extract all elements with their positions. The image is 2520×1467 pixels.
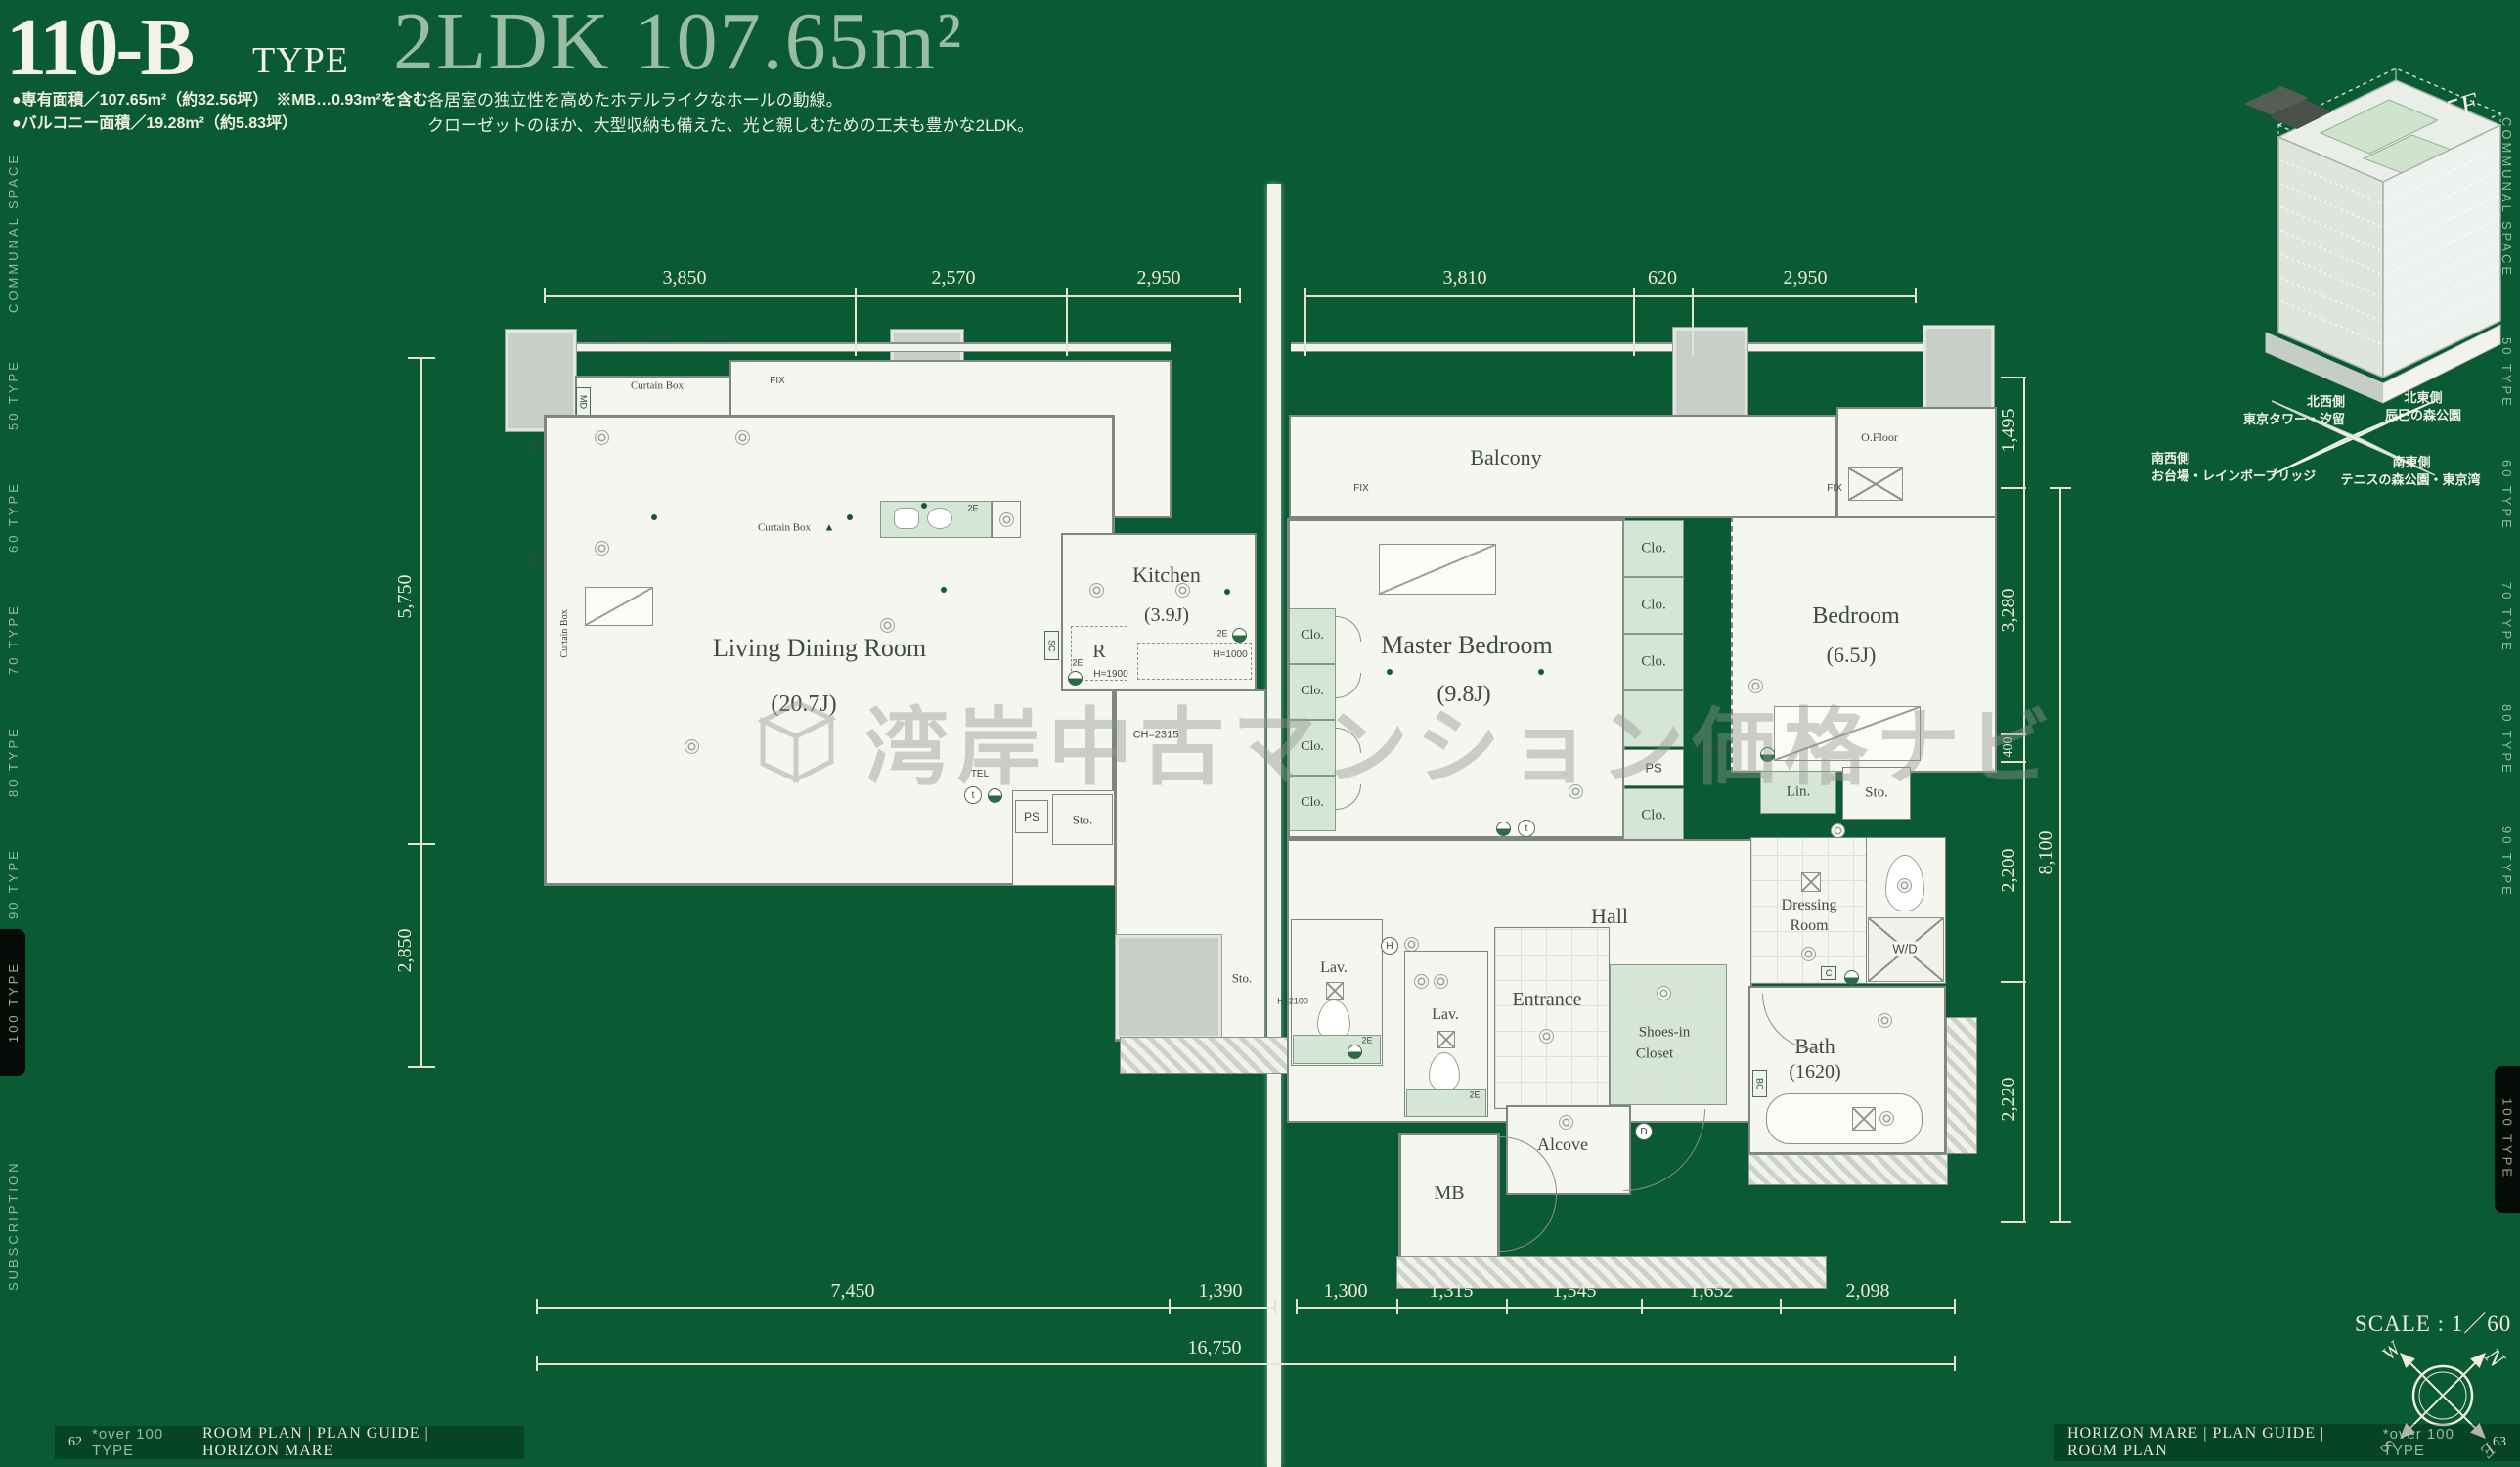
dim-tick	[2001, 487, 2026, 489]
dim-label: 3,850	[663, 268, 707, 288]
compass-ne-place: 辰巳の森公園	[2345, 405, 2501, 423]
ceiling-fixture	[1748, 679, 1763, 693]
compass-se-place: テニスの森公園・東京湾	[2298, 469, 2520, 488]
fix-window-label: FIX	[710, 333, 726, 342]
lavatory-label: Lav.	[1432, 1007, 1459, 1023]
dim-line	[2023, 377, 2025, 1221]
dim-tick	[408, 357, 435, 359]
kitchen-size: (3.9J)	[1144, 605, 1189, 625]
entrance-door-arc	[1623, 1109, 1705, 1191]
dim-tick	[1954, 1356, 1956, 1371]
compass-sw-side: 南西側	[2151, 448, 2269, 467]
closet-label: Clo.	[1641, 542, 1665, 556]
sink-basin	[894, 508, 919, 529]
bath-size: (1620)	[1789, 1062, 1840, 1082]
dim-tick	[2001, 1221, 2026, 1222]
outlet-symbol	[1844, 970, 1859, 985]
dressing-room-label-2: Room	[1790, 918, 1828, 934]
outlet-symbol	[1348, 1045, 1362, 1059]
curtain-box-label: Curtain Box	[758, 523, 811, 534]
closet-label: Clo.	[1641, 809, 1665, 823]
edge-tab-communal-left: COMMUNAL SPACE	[6, 108, 21, 313]
area-line-2: ●バルコニー面積／19.28m²（約5.83坪）	[12, 110, 297, 133]
dim-tick	[1692, 288, 1694, 356]
ceiling-dot	[1741, 800, 1746, 806]
dim-label: 2,950	[1784, 268, 1828, 288]
ceiling-fixture	[1175, 583, 1190, 598]
ceiling-dot	[1224, 589, 1230, 595]
dim-label: 1,545	[1553, 1281, 1597, 1301]
dim-tick	[1506, 1299, 1508, 1314]
meter-box-label: MB	[1434, 1183, 1464, 1203]
o-floor-terrace	[1836, 407, 1997, 518]
building-axon: 25F	[2244, 39, 2508, 416]
page-number-left: 62	[68, 1435, 82, 1450]
footer-right-type: *over 100 TYPE	[2383, 1426, 2483, 1459]
dim-label: 2,850	[395, 929, 415, 973]
ceiling-dot	[651, 514, 657, 520]
outlet-symbol	[1496, 822, 1511, 836]
closet-label: Clo.	[1641, 655, 1665, 670]
ceiling-dot	[1538, 669, 1544, 675]
triangle-marker: ▲	[824, 523, 835, 534]
edge-tab-80-right: 80 TYPE	[2499, 704, 2514, 802]
dim-tick	[2001, 377, 2026, 378]
footer-left-type: *over 100 TYPE	[92, 1426, 193, 1459]
dim-tick	[1633, 288, 1635, 356]
dim-tick	[1915, 288, 1917, 303]
dim-label: 1,315	[1430, 1281, 1474, 1301]
edge-tab-subscription-left: SUBSCRIPTION	[6, 1105, 21, 1291]
bedroom-size: (6.5J)	[1827, 645, 1877, 666]
fix-window-label: FIX	[770, 377, 785, 386]
fix-window-label: FIX	[1353, 484, 1369, 494]
compass-nw-place: 東京タワー・汐留	[2159, 409, 2345, 427]
closet-label: Clo.	[1301, 796, 1324, 810]
edge-tab-90-right: 90 TYPE	[2499, 826, 2514, 924]
h-marker: H	[1381, 937, 1398, 955]
edge-tab-60-left: 60 TYPE	[6, 455, 21, 553]
dim-line-total	[2059, 487, 2061, 1221]
ceiling-fixture	[1801, 947, 1816, 961]
edge-tab-90-left: 90 TYPE	[6, 822, 21, 919]
o-floor-label: O.Floor	[1861, 431, 1898, 443]
dim-tick	[1641, 1299, 1643, 1314]
plan-type-code: 110-B	[6, 0, 192, 95]
tel-outlet-symbol: t	[964, 786, 982, 804]
ceiling-fixture	[1559, 1115, 1573, 1130]
entrance	[1494, 927, 1610, 1109]
living-dining-label: Living Dining Room	[713, 636, 926, 661]
balcony-right	[1289, 415, 1836, 518]
dim-label: 1,652	[1690, 1281, 1734, 1301]
c-tag: C	[1821, 966, 1836, 980]
ceiling-fixture	[1569, 784, 1583, 799]
pillar	[1672, 327, 1748, 426]
dim-tick	[1274, 1299, 1276, 1314]
outlet-symbol	[988, 788, 1002, 803]
plan-type-suffix: TYPE	[252, 39, 349, 82]
footer-right: HORIZON MARE | PLAN GUIDE | ROOM PLAN *o…	[2054, 1424, 2520, 1461]
dim-label: 5,750	[395, 575, 415, 619]
alcove-label: Alcove	[1537, 1135, 1588, 1153]
ceiling-fixture	[1089, 583, 1104, 598]
dim-label: 2,220	[1999, 1078, 2018, 1122]
linen-label: Lin.	[1787, 785, 1811, 800]
closet-label: Clo.	[1301, 629, 1324, 643]
kitchen-counter-dashed	[1137, 643, 1252, 680]
description-line-2: クローゼットのほか、大型収納も備えた、光と親しむための工夫も豊かな2LDK。	[427, 111, 1034, 136]
dim-tick	[408, 1066, 435, 1068]
ceiling-fixture	[595, 430, 609, 445]
switch-symbol: t	[1518, 820, 1535, 837]
dim-tick	[1296, 1299, 1298, 1314]
dim-line	[1296, 1307, 1954, 1309]
balcony-rail	[577, 342, 1171, 352]
ceiling-fixture	[685, 739, 699, 754]
dim-label-total: 8,100	[2036, 831, 2056, 875]
fix-window-label: FIX	[1827, 484, 1842, 494]
edge-tab-60-right: 60 TYPE	[2499, 460, 2514, 557]
closet-label: Clo.	[1641, 599, 1665, 613]
edge-tab-100-active-right: 100 TYPE	[2495, 1066, 2520, 1213]
edge-tab-50-right: 50 TYPE	[2499, 337, 2514, 435]
dim-label-total: 16,750	[1188, 1338, 1242, 1357]
plan-spec: 2LDK 107.65m²	[393, 0, 963, 89]
refrigerator-label: R	[1092, 642, 1105, 661]
compass-ne-side: 北東側	[2355, 387, 2492, 406]
fixture-circle	[1434, 974, 1448, 989]
faucet-dot	[921, 503, 927, 509]
tel-label: TEL	[971, 770, 989, 779]
shower-symbol	[1878, 1013, 1892, 1028]
storage-label: Sto.	[1232, 972, 1253, 985]
sink-basin	[927, 508, 952, 529]
bedroom-label: Bedroom	[1812, 604, 1899, 628]
fixture-box	[1437, 1031, 1455, 1048]
dressing-room-label-1: Dressing	[1782, 898, 1837, 913]
dim-label: 400	[2002, 737, 2015, 758]
dim-tick	[408, 843, 435, 845]
ps-label: PS	[1645, 762, 1661, 775]
edge-tab-100-active-left: 100 TYPE	[0, 929, 25, 1076]
dim-tick	[544, 288, 546, 303]
dim-tick	[2001, 733, 2026, 735]
ceiling-height-label: CH=2315	[1133, 731, 1179, 741]
bed-symbol	[1379, 544, 1496, 595]
fixture-circle	[1404, 937, 1419, 952]
outlet-2e-label: 2E	[1072, 659, 1083, 668]
dim-tick	[1169, 1299, 1171, 1314]
fixture-circle	[1414, 974, 1429, 989]
ceiling-dot	[941, 587, 947, 593]
balcony-rail	[1291, 342, 1966, 352]
ceiling-fixture	[880, 618, 895, 633]
dim-line	[544, 295, 1239, 297]
bathtub	[1766, 1093, 1923, 1144]
storage-label: Sto.	[1073, 814, 1093, 826]
basin-drain	[1897, 878, 1912, 893]
dim-tick	[1780, 1299, 1782, 1314]
curtain-box-vertical-label: Curtain Box	[560, 609, 570, 657]
md-tag: MD	[576, 387, 591, 417]
edge-tab-50-left: 50 TYPE	[6, 333, 21, 430]
ceiling-fixture	[735, 430, 750, 445]
fixture-box	[1801, 872, 1821, 892]
ceiling-dot	[847, 514, 853, 520]
height-label: H=2100	[1277, 998, 1308, 1006]
ceiling-fixture	[1831, 823, 1845, 838]
brochure-page: 110-B TYPE 2LDK 107.65m² ●専有面積／107.65m²（…	[0, 0, 2520, 1467]
ceiling-fixture	[1539, 1029, 1554, 1044]
edge-tab-communal-right: COMMUNAL SPACE	[2499, 117, 2514, 323]
edge-tab-100-label: 100 TYPE	[2500, 1098, 2515, 1179]
dim-label: 7,450	[831, 1281, 875, 1301]
dim-label: 2,098	[1846, 1281, 1890, 1301]
outlet-2e-label: 2E	[1216, 630, 1227, 639]
master-bedroom-label: Master Bedroom	[1381, 633, 1552, 658]
dim-tick	[1304, 288, 1306, 356]
footer-left: 62 *over 100 TYPE ROOM PLAN | PLAN GUIDE…	[55, 1426, 524, 1459]
outlet-2e-label: 2E	[1361, 1037, 1372, 1045]
storage-label: Sto.	[1865, 786, 1888, 801]
balcony-label: Balcony	[1470, 447, 1541, 468]
edge-tab-70-left: 70 TYPE	[6, 577, 21, 675]
edge-tab-80-left: 80 TYPE	[6, 699, 21, 797]
dim-tick	[536, 1299, 538, 1314]
height-label: H=1000	[1213, 650, 1247, 660]
fix-window-label: FIX	[531, 437, 541, 453]
tub-drain	[1879, 1111, 1894, 1126]
dim-label: 2,570	[932, 268, 976, 288]
dim-tick	[536, 1356, 538, 1371]
shoes-closet-label-2: Closet	[1636, 1047, 1673, 1062]
dim-tick	[1239, 288, 1241, 303]
ceiling-dot	[1387, 669, 1393, 675]
living-dining-size: (20.7J)	[771, 692, 836, 716]
footer-right-text: HORIZON MARE | PLAN GUIDE | ROOM PLAN	[2067, 1425, 2373, 1460]
description-line-1: 各居室の独立性を高めたホテルライクなホールの動線。	[427, 86, 843, 111]
outlet-symbol	[1068, 671, 1083, 686]
cooktop-burner	[999, 512, 1014, 527]
page-gutter	[1267, 184, 1281, 1467]
compass-n: N	[2479, 1343, 2510, 1374]
dim-label: 2,950	[1137, 268, 1181, 288]
ceiling-fixture	[595, 541, 609, 556]
closet-label: Clo.	[1301, 740, 1324, 754]
fix-window-label: FIX	[653, 333, 669, 342]
closet-label: Clo.	[1301, 685, 1324, 698]
pillar	[1115, 934, 1222, 1040]
curtain-box-label: Curtain Box	[631, 381, 684, 392]
dim-line	[536, 1307, 1274, 1309]
dim-line	[1304, 295, 1915, 297]
dim-tick	[1954, 1299, 1956, 1314]
edge-tab-100-label: 100 TYPE	[6, 961, 21, 1043]
lavatory-label: Lav.	[1320, 960, 1348, 976]
outlet-symbol	[1760, 747, 1775, 762]
dim-line-total	[536, 1363, 1954, 1365]
light-box	[1848, 467, 1903, 501]
fixture-box	[1326, 982, 1344, 1000]
outlet-2e-label: 2E	[1469, 1091, 1480, 1100]
closet-cell	[1623, 690, 1684, 747]
ps-label: PS	[1024, 811, 1039, 822]
outlet-2e-label: 2E	[967, 505, 978, 513]
dim-label: 1,300	[1324, 1281, 1368, 1301]
dim-tick	[1066, 288, 1068, 356]
height-label: H=1900	[1093, 670, 1127, 680]
master-bedroom-size: (9.8J)	[1437, 683, 1490, 706]
compass-se-side: 南東側	[2343, 452, 2480, 470]
dim-tick	[2050, 487, 2071, 489]
dim-label: 2,200	[1999, 849, 2018, 893]
dim-label: 620	[1648, 268, 1677, 288]
bath-fixture	[1852, 1107, 1876, 1131]
footer-left-text: ROOM PLAN | PLAN GUIDE | HORIZON MARE	[202, 1425, 510, 1460]
dim-label: 1,390	[1199, 1281, 1243, 1301]
dim-tick	[855, 288, 857, 356]
ceiling-fixture	[1657, 986, 1671, 1000]
dim-line	[420, 357, 422, 1066]
dim-label: 3,280	[1999, 589, 2018, 633]
dim-label: 3,810	[1443, 268, 1487, 288]
compass-nw-side: 北西側	[2188, 391, 2345, 410]
edge-tab-70-right: 70 TYPE	[2499, 582, 2514, 680]
hall-label: Hall	[1591, 906, 1628, 927]
bed-symbol	[1774, 706, 1921, 761]
sc-tag: SC	[1044, 631, 1059, 660]
area-line-1: ●専有面積／107.65m²（約32.56坪） ※MB…0.93m²を含む	[12, 86, 428, 110]
dim-tick	[2001, 761, 2026, 763]
shoes-closet-label-1: Shoes-in	[1639, 1026, 1691, 1041]
porch-hatch	[1946, 1017, 1977, 1154]
fix-window-label: FIX	[531, 552, 541, 567]
porch-hatch	[1748, 1154, 1948, 1185]
compass-w: W	[2378, 1337, 2407, 1365]
mb-door-arc	[1500, 1195, 1557, 1252]
dim-tick	[1396, 1299, 1398, 1314]
bc-tag: BC	[1752, 1070, 1767, 1097]
entrance-label: Entrance	[1512, 990, 1581, 1009]
dim-tick	[2050, 1221, 2071, 1222]
kitchen-label: Kitchen	[1132, 564, 1201, 586]
washer-dryer-label: W/D	[1890, 942, 1919, 956]
dim-tick	[2001, 981, 2026, 983]
dim-label: 1,495	[1999, 409, 2018, 453]
sofa-symbol	[585, 587, 653, 626]
page-number-right: 63	[2493, 1435, 2506, 1450]
outlet-symbol	[1232, 628, 1247, 643]
fix-window-label: FIX	[597, 333, 612, 342]
